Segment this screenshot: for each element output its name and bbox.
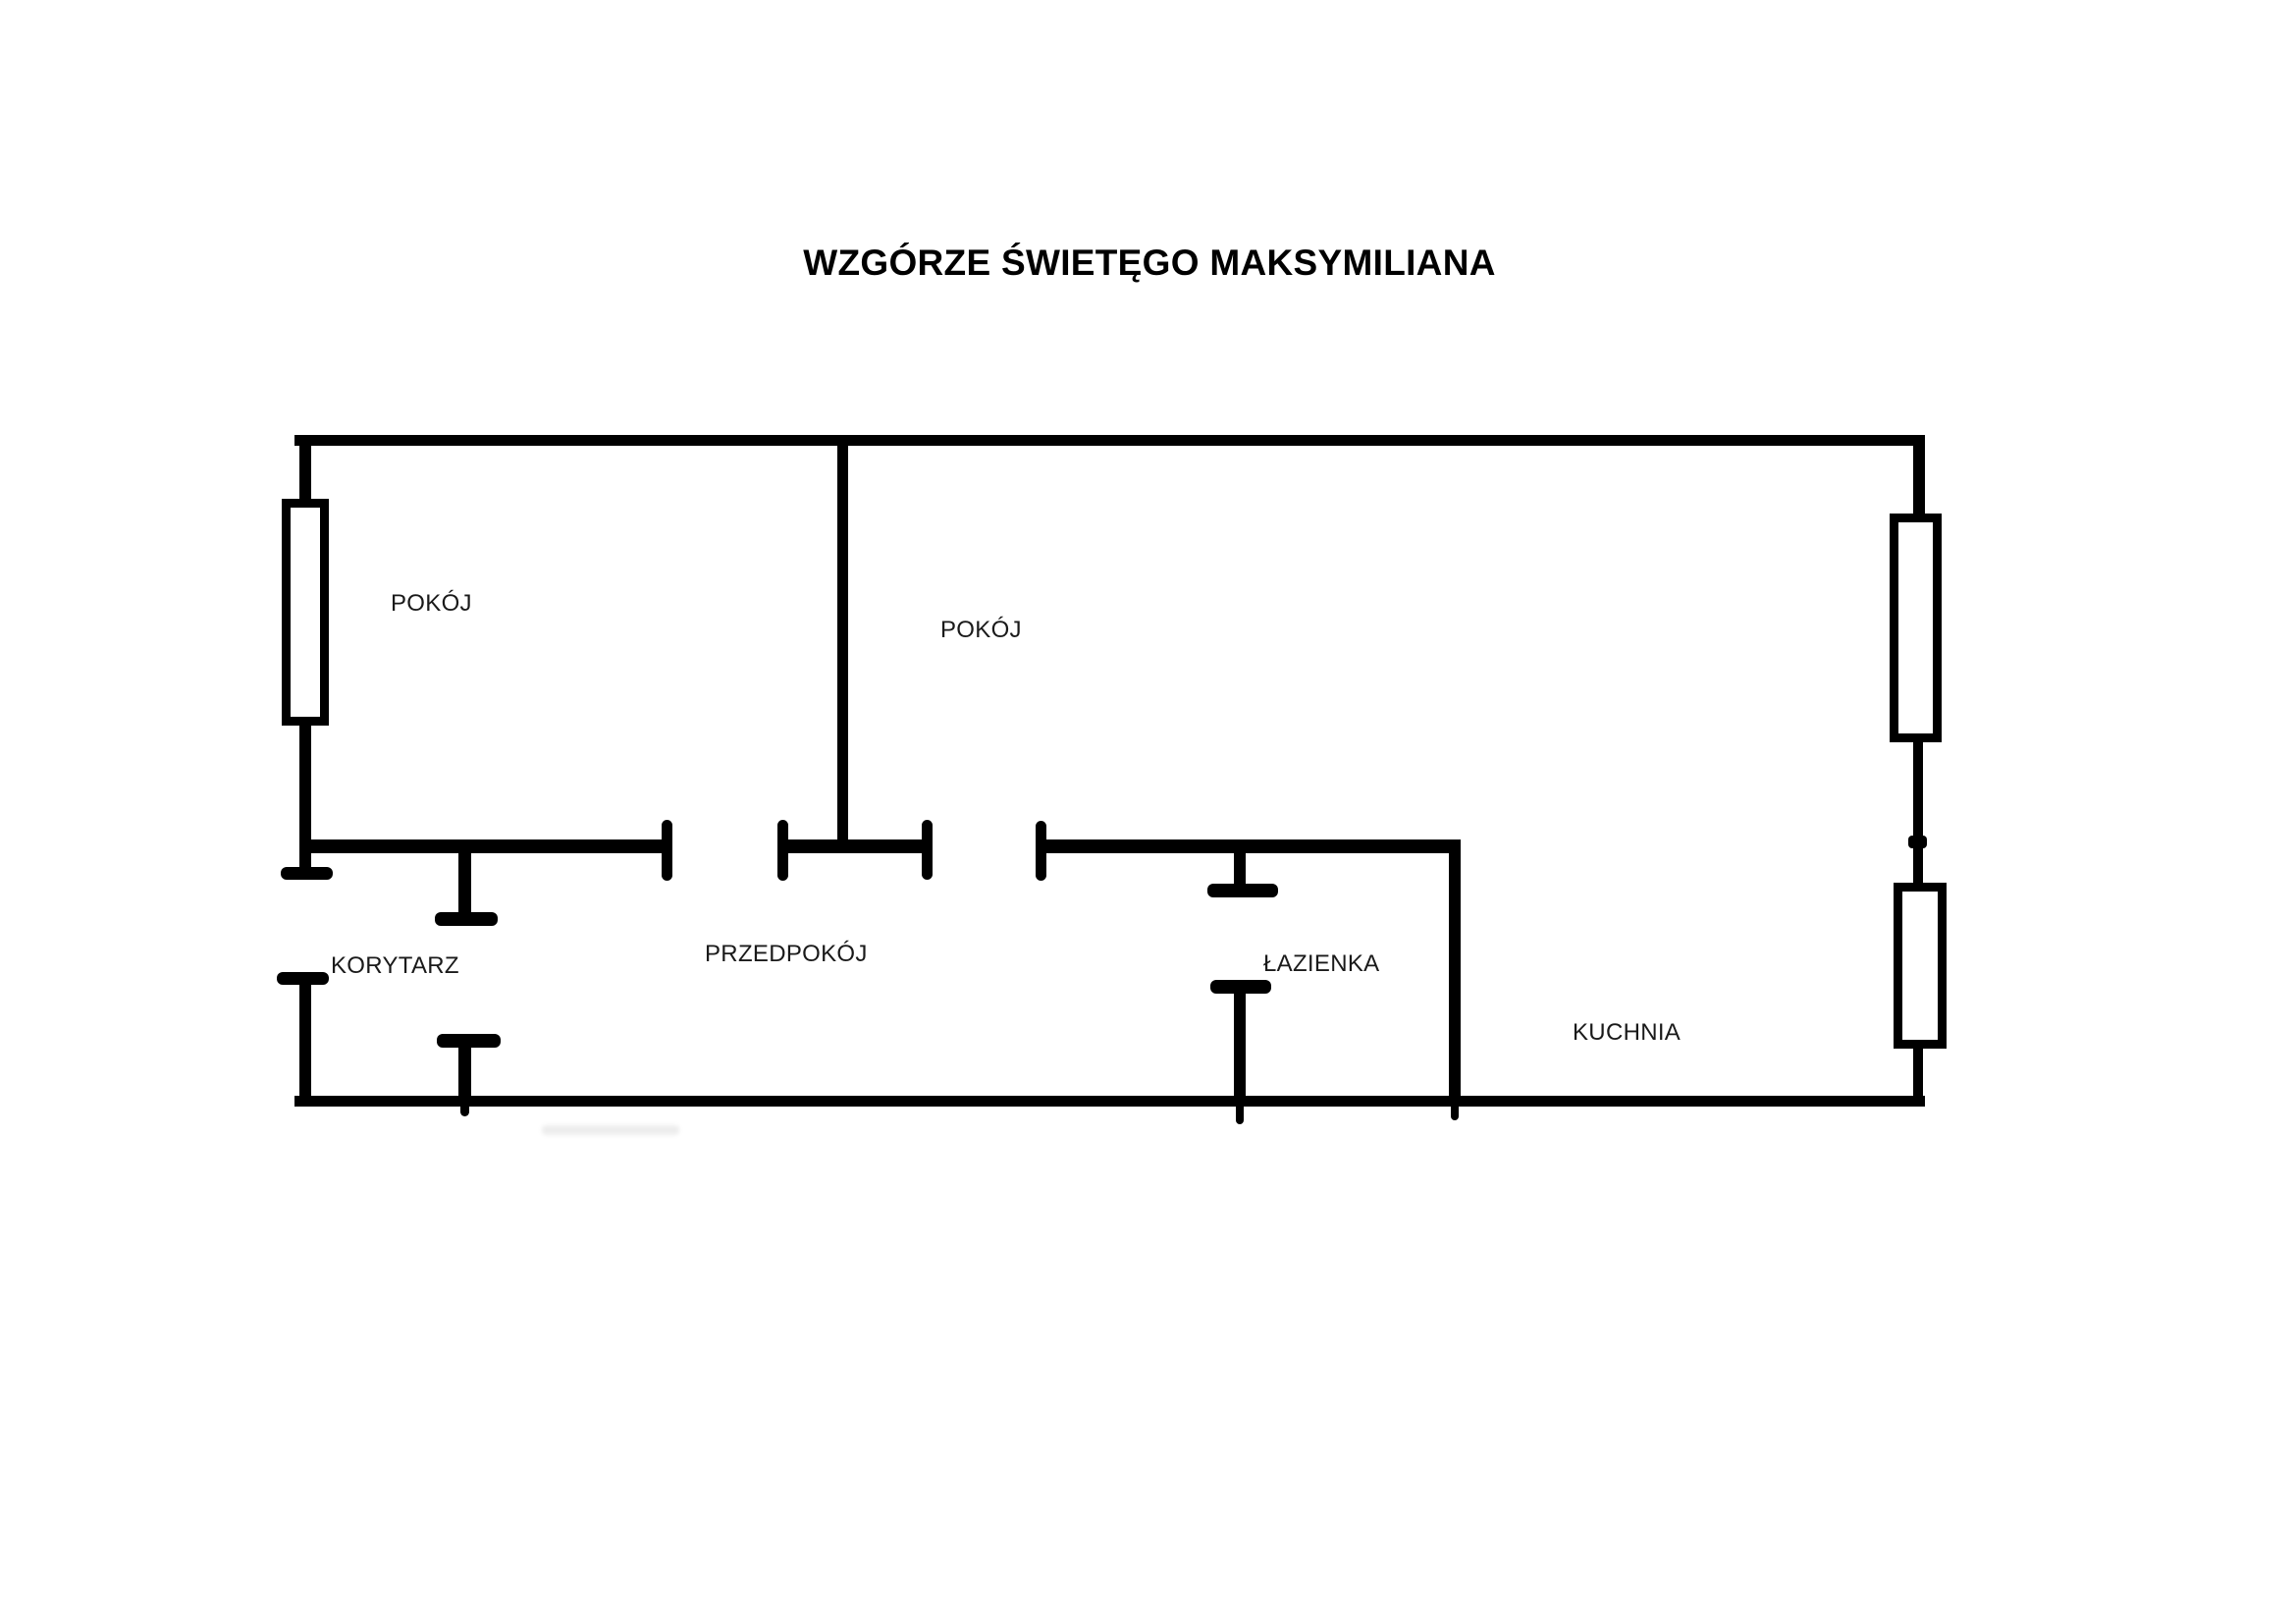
door-symbol-hall-stem bbox=[458, 850, 471, 915]
room-label-korytarz: KORYTARZ bbox=[331, 953, 459, 979]
room-label-pokoj-left: POKÓJ bbox=[391, 591, 472, 617]
window-symbol-right-bottom bbox=[1894, 883, 1947, 1049]
wall-bathroom-right bbox=[1449, 839, 1461, 1107]
door-symbol-bathroom-bottom-stem bbox=[1234, 992, 1246, 1107]
door-symbol-bathroom-top-cap bbox=[1207, 884, 1278, 897]
door-symbol-korytarz-stem bbox=[458, 1046, 471, 1107]
floor-plan: WZGÓRZE ŚWIETĘGO MAKSYMILIANA POKÓJ POKÓ… bbox=[0, 0, 2296, 1624]
wall-joint-mark-right bbox=[1908, 836, 1927, 848]
wall-top bbox=[294, 435, 1925, 446]
erased-mark bbox=[542, 1125, 679, 1135]
wall-hall-mid-segment bbox=[785, 839, 924, 853]
door-symbol-bathroom-bottom-tip bbox=[1236, 1107, 1244, 1124]
wall-hall-right-segment bbox=[1043, 839, 1461, 853]
wall-room-divider bbox=[837, 440, 848, 852]
door-jamb-4 bbox=[1036, 821, 1046, 881]
page-title: WZGÓRZE ŚWIETĘGO MAKSYMILIANA bbox=[803, 243, 1496, 284]
wall-left-lower bbox=[299, 982, 311, 1107]
door-symbol-hall-cap bbox=[435, 912, 498, 926]
window-symbol-right-top bbox=[1890, 514, 1942, 742]
wall-right-middle bbox=[1913, 738, 1923, 888]
room-label-kuchnia: KUCHNIA bbox=[1573, 1020, 1681, 1046]
wall-bathroom-right-tip bbox=[1451, 1107, 1459, 1120]
door-jamb-left-upper bbox=[281, 867, 333, 880]
wall-left-upper bbox=[299, 435, 311, 504]
wall-right-lower bbox=[1913, 1044, 1923, 1107]
window-symbol-left bbox=[282, 499, 329, 726]
wall-hall-left-segment bbox=[299, 839, 663, 853]
room-label-przedpokoj: PRZEDPOKÓJ bbox=[705, 942, 868, 967]
door-jamb-1 bbox=[662, 820, 672, 881]
door-jamb-3 bbox=[922, 820, 933, 880]
room-label-pokoj-right: POKÓJ bbox=[940, 618, 1022, 643]
wall-right-upper bbox=[1913, 435, 1925, 518]
door-jamb-2 bbox=[777, 820, 788, 881]
wall-bottom bbox=[294, 1096, 1925, 1107]
door-symbol-korytarz-tip bbox=[460, 1107, 469, 1116]
room-label-lazienka: ŁAZIENKA bbox=[1263, 951, 1379, 977]
